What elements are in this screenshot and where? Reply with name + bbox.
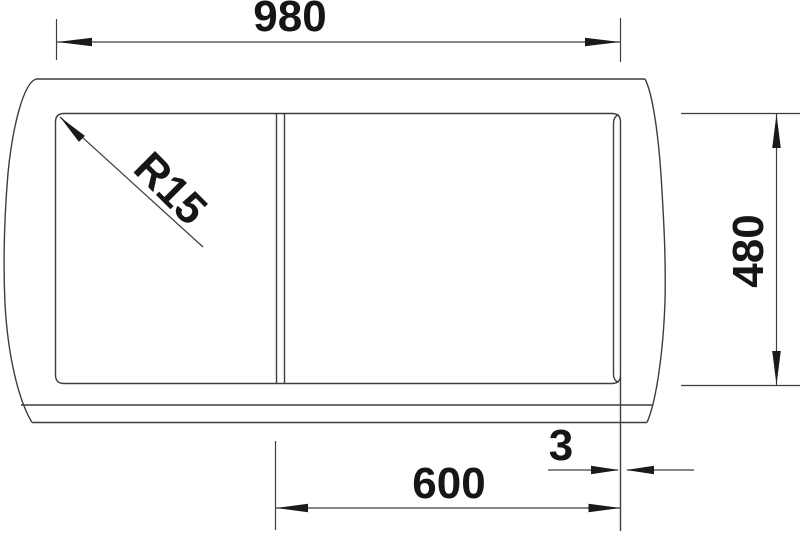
bowl-divider (277, 114, 285, 383)
sink-outer-outline (4, 79, 665, 423)
gap-dimension-label: 3 (549, 424, 573, 468)
offset-arrow-left (276, 504, 308, 512)
sink-right-break-edge (645, 79, 665, 423)
width-arrow-right (585, 38, 620, 46)
offset-dimension-label: 600 (412, 462, 485, 506)
width-dimension-label: 980 (253, 0, 326, 39)
radius-arrow (60, 117, 85, 142)
bowl-inner-right-edge (614, 115, 619, 383)
gap-arrow-left (591, 466, 619, 474)
sink-left-break-edge (4, 79, 36, 423)
width-dimension (57, 18, 621, 62)
width-arrow-left (57, 38, 92, 46)
drawing-canvas (0, 0, 800, 533)
offset-arrow-right (589, 504, 621, 512)
depth-arrow-top (772, 114, 781, 148)
depth-dimension-label: 480 (727, 214, 771, 287)
sink-dimension-drawing: 980 480 600 3 R15 (0, 0, 800, 533)
depth-arrow-bottom (772, 351, 781, 385)
gap-arrow-right (626, 466, 654, 474)
